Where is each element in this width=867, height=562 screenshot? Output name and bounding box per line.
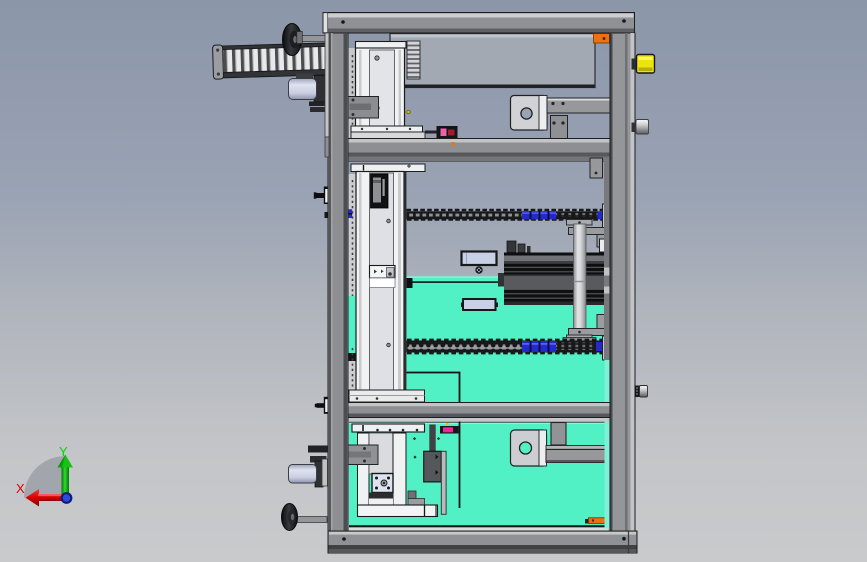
svg-text:X: X [16,481,25,496]
svg-text:Y: Y [59,444,68,459]
